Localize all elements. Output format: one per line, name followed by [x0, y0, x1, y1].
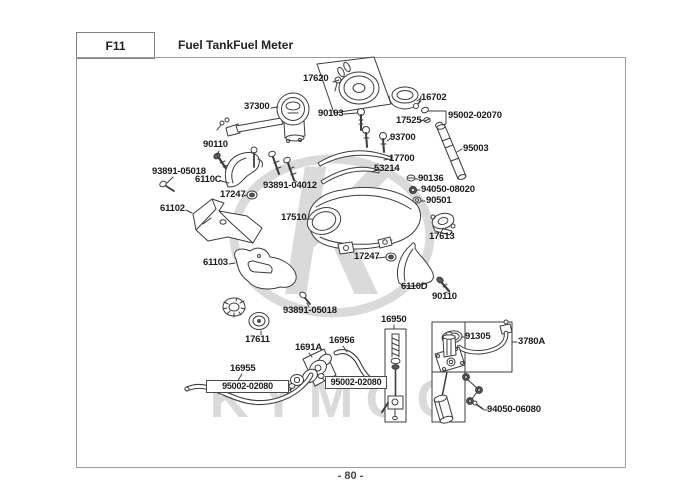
part-label-17613: 17613: [429, 232, 454, 242]
part-label-95002-02080-left: 95002-02080: [206, 380, 289, 393]
part-label-94050-06080: 94050-06080: [487, 405, 541, 415]
part-label-90110-b: 90110: [432, 292, 457, 302]
part-label-17247-b: 17247: [354, 252, 379, 262]
part-label-90103: 90103: [318, 109, 343, 119]
part-label-95003: 95003: [463, 144, 488, 154]
part-label-93891-04012: 93891-04012: [263, 181, 317, 191]
page-title: Fuel TankFuel Meter: [178, 38, 293, 52]
part-label-16956: 16956: [329, 336, 354, 346]
part-label-3780A: 3780A: [518, 337, 545, 347]
part-label-90110-a: 90110: [203, 140, 228, 150]
part-label-90501: 90501: [426, 196, 451, 206]
part-label-17247-a: 17247: [220, 190, 245, 200]
part-label-17525: 17525: [396, 116, 421, 126]
part-label-95002-02080-right: 95002-02080: [325, 376, 387, 389]
page-number: - 80 -: [76, 470, 625, 482]
part-label-1691A: 1691A: [295, 343, 322, 353]
part-label-16702: 16702: [421, 93, 446, 103]
diagram-frame: [76, 57, 626, 468]
part-label-95002-02070: 95002-02070: [448, 111, 502, 121]
part-label-94050-08020: 94050-08020: [421, 185, 475, 195]
part-label-93700: 93700: [390, 133, 415, 143]
part-label-17510: 17510: [281, 213, 306, 223]
part-label-17620: 17620: [303, 74, 328, 84]
part-label-37300: 37300: [244, 102, 269, 112]
part-label-6110D: 6110D: [401, 282, 427, 292]
part-label-61102: 61102: [160, 204, 185, 214]
section-code: F11: [105, 39, 125, 53]
part-label-90136: 90136: [418, 174, 443, 184]
part-label-16955: 16955: [230, 364, 255, 374]
part-label-16950: 16950: [381, 315, 406, 325]
part-label-93891-05018-b: 93891-05018: [283, 306, 337, 316]
part-label-91305: 91305: [465, 332, 490, 342]
part-label-53214: 53214: [374, 164, 399, 174]
parts-catalog-page: F11 Fuel TankFuel Meter K KYMCO: [0, 0, 700, 495]
section-code-box: F11: [76, 32, 155, 59]
part-label-61103: 61103: [203, 258, 228, 268]
part-label-6110C: 6110C: [195, 175, 221, 185]
part-label-17611: 17611: [245, 335, 270, 345]
